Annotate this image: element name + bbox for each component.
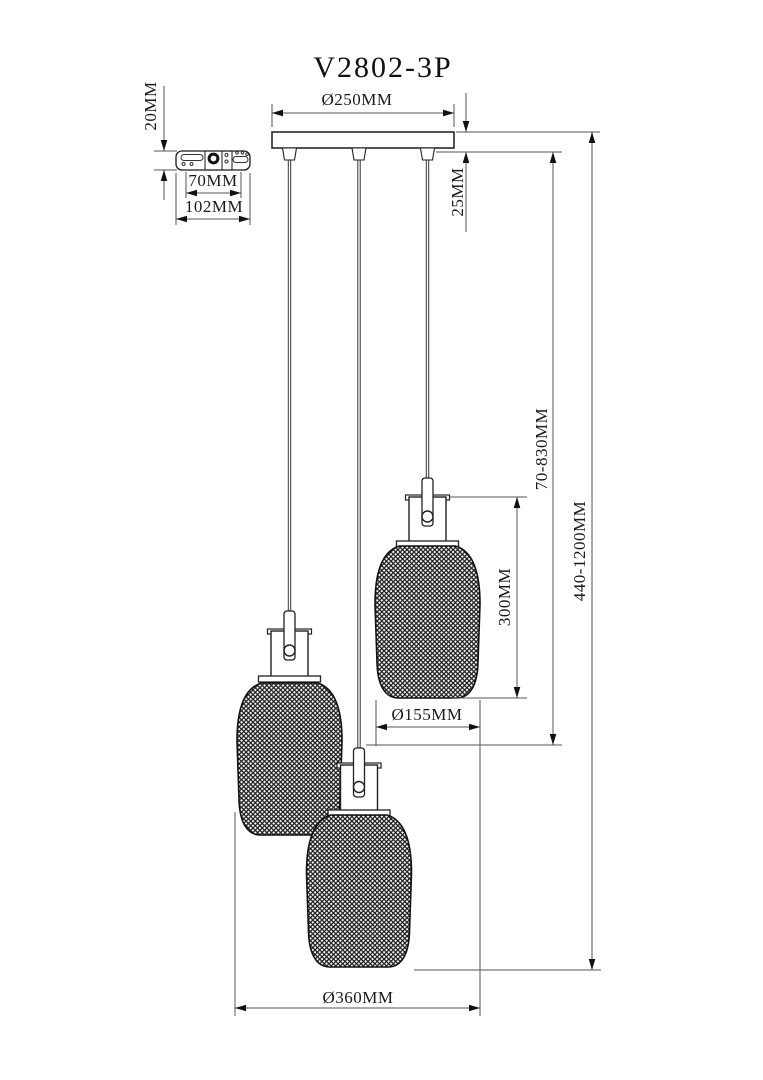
dim-label-bracket-width: 102MM: [185, 197, 243, 217]
cord-grip-right: [421, 148, 435, 160]
cord-left: [288, 160, 290, 611]
cord-grip-left: [283, 148, 297, 160]
dim-label-canopy-diameter: Ø250MM: [321, 90, 392, 110]
mounting-bracket-view: [176, 151, 250, 170]
dim-label-spread-diameter: Ø360MM: [322, 988, 393, 1008]
dim-label-bracket-hole-spacing: 70MM: [188, 171, 237, 191]
drawing-linework: [0, 0, 763, 1080]
mesh-shade-middle: [307, 815, 412, 967]
canopy-plate: [272, 132, 454, 160]
technical-drawing-canvas: V2802-3P Ø250MM 25MM 20MM 70MM 102MM 70-…: [0, 0, 763, 1080]
dim-label-suspension-range: 70-830MM: [532, 408, 552, 490]
dim-label-shade-height: 300MM: [495, 568, 515, 626]
product-code: V2802-3P: [313, 51, 452, 85]
mesh-shade-right: [375, 546, 480, 698]
dim-label-shade-diameter: Ø155MM: [391, 705, 462, 725]
pendant-left: [237, 611, 342, 835]
pendant-right: [375, 478, 480, 698]
dim-label-canopy-drop: 25MM: [448, 167, 468, 216]
dim-label-overall-height: 440-1200MM: [570, 501, 590, 601]
cord-right: [426, 160, 428, 478]
dim-label-bracket-height: 20MM: [141, 81, 161, 130]
cord-grip-middle: [352, 148, 366, 160]
cord-middle: [358, 160, 360, 748]
mesh-shade-left: [237, 683, 342, 835]
bracket-slot-left: [181, 155, 203, 161]
bracket-slot-right: [233, 157, 248, 163]
